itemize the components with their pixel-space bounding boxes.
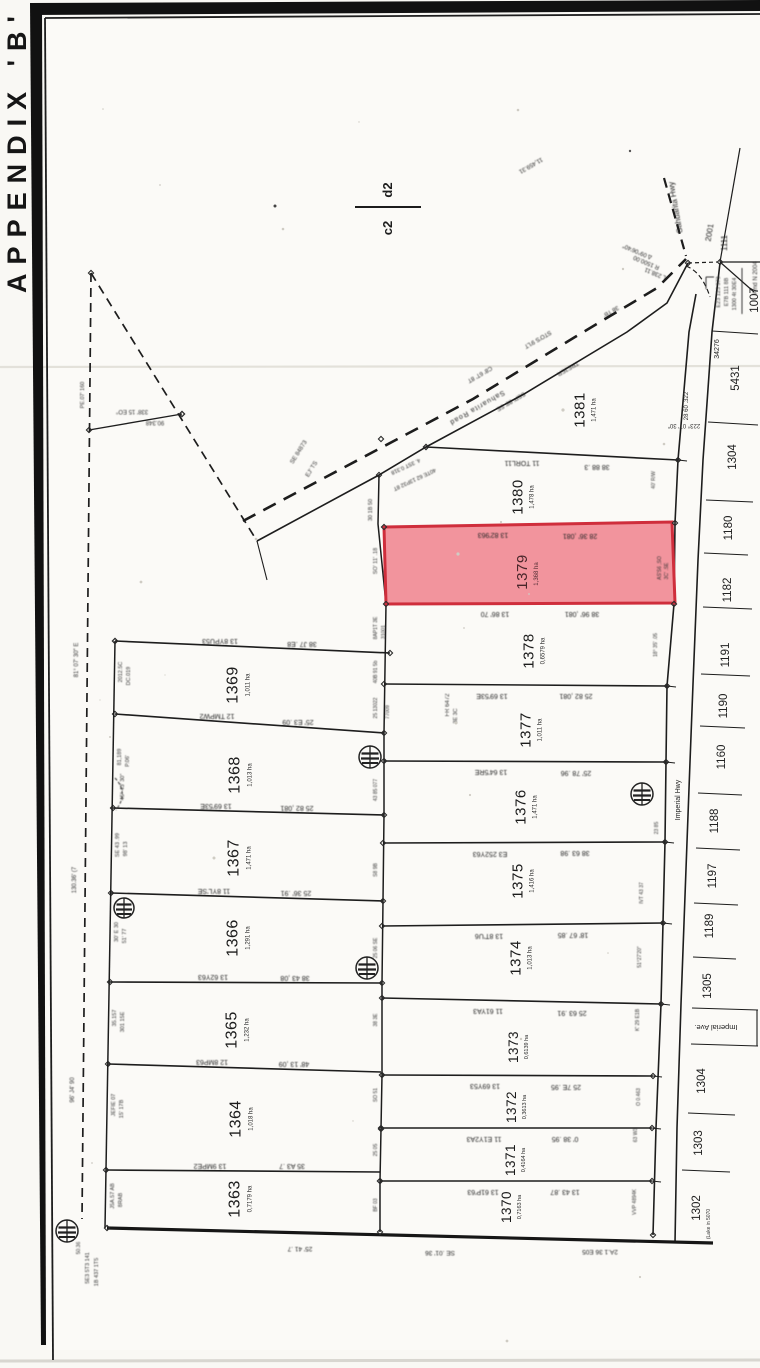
svg-text:38 3E: 38 3E (373, 1013, 379, 1027)
svg-text:1368: 1368 (227, 756, 244, 794)
svg-text:DC.019: DC.019 (126, 667, 132, 686)
svg-text:FR 6472: FR 6472 (445, 693, 451, 717)
svg-text:35.157: 35.157 (112, 1010, 118, 1027)
svg-text:25 7E .95: 25 7E .95 (551, 1083, 581, 1090)
svg-text:5431: 5431 (730, 365, 742, 391)
svg-text:SE .01' 36: SE .01' 36 (425, 1249, 455, 1256)
svg-text:1,232 ha: 1,232 ha (245, 1018, 251, 1042)
svg-text:40' R/W: 40' R/W (651, 471, 657, 489)
svg-text:0,6139 ha: 0,6139 ha (524, 1034, 530, 1059)
svg-text:SO 51: SO 51 (373, 1088, 379, 1102)
svg-text:1,478 ha: 1,478 ha (530, 485, 536, 509)
svg-text:13 9MPE2: 13 9MPE2 (194, 1162, 227, 1169)
svg-text:1,011 ha: 1,011 ha (538, 718, 544, 742)
svg-text:35 A3 .7: 35 A3 .7 (279, 1162, 305, 1169)
svg-text:VVP 4894K: VVP 4894K (632, 1188, 638, 1214)
svg-text:38 63 .98: 38 63 .98 (560, 849, 589, 856)
svg-text:E23 123 373: E23 123 373 (716, 276, 722, 307)
svg-text:1366: 1366 (225, 919, 242, 957)
svg-text:1377: 1377 (518, 712, 535, 747)
svg-text:1365: 1365 (224, 1011, 241, 1049)
svg-text:0,3613 ha: 0,3613 ha (522, 1094, 528, 1119)
svg-text:25 82 ,081: 25 82 ,081 (280, 804, 313, 811)
svg-text:43 85 077: 43 85 077 (373, 779, 379, 801)
svg-text:11 8YL'SE: 11 8YL'SE (198, 887, 231, 894)
svg-text:12 8MP63: 12 8MP63 (196, 1058, 228, 1065)
svg-text:1182: 1182 (722, 578, 734, 603)
svg-text:1367: 1367 (226, 839, 243, 877)
svg-text:98' 13: 98' 13 (123, 842, 129, 857)
svg-text:11 E1Y2A3: 11 E1Y2A3 (466, 1135, 501, 1142)
svg-text:1197: 1197 (707, 864, 719, 889)
svg-text:1,471 ha: 1,471 ha (247, 846, 253, 870)
svg-text:1304: 1304 (696, 1068, 708, 1094)
svg-text:3E 3C: 3E 3C (453, 708, 459, 723)
svg-text:1374: 1374 (508, 940, 525, 975)
svg-text:S8 9B: S8 9B (373, 863, 379, 877)
svg-text:81° 07' 30″ E: 81° 07' 30″ E (74, 643, 80, 678)
svg-text:48' 13 ,09: 48' 13 ,09 (279, 1060, 310, 1067)
svg-text:1363: 1363 (227, 1180, 244, 1218)
svg-text:31001: 31001 (381, 625, 387, 639)
svg-text:81,189: 81,189 (117, 749, 123, 766)
svg-text:1,013 ha: 1,013 ha (248, 763, 254, 787)
svg-text:E3 252Y63: E3 252Y63 (473, 850, 508, 857)
svg-text:130.36' (7: 130.36' (7 (72, 866, 78, 893)
svg-text:301 15E: 301 15E (120, 1011, 126, 1032)
svg-text:28 36' ,081: 28 36' ,081 (563, 532, 598, 539)
svg-text:1305: 1305 (702, 973, 714, 999)
svg-text:0,7179 ha: 0,7179 ha (248, 1185, 254, 1212)
svg-text:1380: 1380 (510, 479, 527, 514)
svg-text:30 1B 50: 30 1B 50 (368, 499, 374, 521)
svg-text:1B 437 1T5: 1B 437 1T5 (94, 1258, 100, 1286)
svg-text:18' 67 .85: 18' 67 .85 (558, 931, 589, 938)
svg-text:77009: 77009 (385, 705, 391, 719)
svg-text:(Lake in 5070: (Lake in 5070 (706, 1209, 712, 1240)
svg-text:0,7163 ha: 0,7163 ha (517, 1194, 523, 1219)
svg-text:APPENDIX 'B': APPENDIX 'B' (2, 7, 32, 293)
svg-text:1303: 1303 (693, 1130, 705, 1156)
svg-text:1300 4t 30E4: 1300 4t 30E4 (732, 278, 738, 311)
svg-text:1,013 ha: 1,013 ha (528, 946, 534, 970)
svg-text:0,4164 ha: 0,4164 ha (521, 1147, 527, 1172)
svg-text:2012.5C: 2012.5C (118, 662, 124, 683)
svg-text:25 06 SE: 25 06 SE (373, 937, 379, 958)
svg-text:13 62Y63: 13 62Y63 (198, 973, 228, 980)
svg-text:1369: 1369 (225, 666, 242, 704)
svg-text:1378: 1378 (521, 633, 538, 668)
svg-text:1191: 1191 (720, 643, 732, 668)
svg-text:Imperial Hwy: Imperial Hwy (675, 779, 682, 820)
svg-text:8AP1T 3E: 8AP1T 3E (373, 616, 379, 639)
svg-text:1180: 1180 (723, 516, 735, 541)
svg-text:25 63 .91: 25 63 .91 (557, 1009, 586, 1016)
svg-text:38 88 .3: 38 88 .3 (584, 463, 609, 470)
svg-text:1160: 1160 (716, 745, 728, 770)
svg-text:c2: c2 (380, 221, 395, 235)
svg-text:13 82'963: 13 82'963 (478, 531, 509, 538)
svg-text:25' 78 .96: 25' 78 .96 (561, 769, 592, 776)
svg-text:25' 41 .7: 25' 41 .7 (287, 1245, 312, 1252)
svg-text:1,471 ha: 1,471 ha (533, 795, 539, 819)
svg-text:1,368 ha: 1,368 ha (534, 562, 540, 586)
svg-text:1364: 1364 (228, 1100, 245, 1138)
svg-text:IVT 43 37: IVT 43 37 (639, 882, 645, 904)
svg-text:28 60 .322: 28 60 .322 (684, 391, 690, 420)
svg-text:51' 77: 51' 77 (122, 929, 128, 944)
svg-text:40B 91 5b: 40B 91 5b (373, 660, 379, 683)
svg-text:38 J7 .E8: 38 J7 .E8 (287, 640, 317, 647)
svg-text:11 61YA3: 11 61YA3 (473, 1007, 503, 1014)
svg-text:25 13022: 25 13022 (373, 697, 379, 718)
svg-text:0,6579 ha: 0,6579 ha (541, 637, 547, 664)
svg-text:25 36' .91: 25 36' .91 (281, 889, 312, 896)
svg-text:50.36: 50.36 (76, 1242, 82, 1255)
svg-text:13 69'53E: 13 69'53E (200, 802, 232, 809)
svg-text:Imperial Ave.: Imperial Ave. (694, 1023, 737, 1032)
svg-text:2A.1 36 E05: 2A.1 36 E05 (582, 1248, 618, 1255)
svg-text:13 69'53E: 13 69'53E (476, 692, 508, 699)
svg-text:1188: 1188 (709, 809, 721, 834)
svg-text:12 TMPW2: 12 TMPW2 (199, 712, 234, 719)
svg-text:223° 07' 30″: 223° 07' 30″ (667, 422, 700, 428)
svg-text:SO' 11' .18: SO' 11' .18 (373, 548, 379, 574)
svg-text:1,018 ha: 1,018 ha (249, 1107, 255, 1131)
svg-text:K' 29 E1B: K' 29 E1B (635, 1008, 641, 1031)
svg-text:63 W3: 63 W3 (633, 1128, 639, 1143)
svg-text:13 69Y53: 13 69Y53 (470, 1082, 500, 1089)
svg-text:15' 17B: 15' 17B (119, 1099, 125, 1118)
svg-text:PE.07' 160: PE.07' 160 (80, 382, 86, 409)
svg-text:1379: 1379 (514, 554, 531, 589)
svg-text:1,471 ha: 1,471 ha (592, 398, 598, 422)
svg-text:d2: d2 (380, 182, 395, 197)
svg-text:O 0.463: O 0.463 (636, 1088, 642, 1106)
svg-text:25' E3 .09: 25' E3 .09 (282, 718, 313, 725)
svg-text:13 8YPU53: 13 8YPU53 (202, 637, 238, 644)
svg-text:25 05: 25 05 (373, 1144, 379, 1157)
svg-text:E7B 111 8B: E7B 111 8B (724, 277, 730, 306)
svg-text:1381: 1381 (572, 392, 589, 427)
svg-text:1,011 ha: 1,011 ha (246, 673, 252, 697)
svg-text:AS'S6 ,SO: AS'S6 ,SO (657, 556, 663, 580)
svg-text:38 96' ,081: 38 96' ,081 (565, 610, 600, 617)
svg-text:51°27'20″: 51°27'20″ (637, 946, 643, 968)
svg-text:1189: 1189 (704, 914, 716, 939)
svg-text:13 86' 70: 13 86' 70 (481, 610, 510, 617)
svg-text:5E3 5T3 141: 5E3 5T3 141 (85, 1252, 91, 1284)
svg-text:1190: 1190 (718, 694, 730, 719)
svg-text:1304: 1304 (727, 444, 739, 470)
svg-text:13 8T'U6: 13 8T'U6 (475, 932, 503, 939)
svg-text:11 TORL11: 11 TORL11 (504, 459, 539, 466)
svg-text:1375: 1375 (510, 863, 527, 898)
svg-text:30' E 30: 30' E 30 (114, 922, 120, 942)
svg-text:1,291 ha: 1,291 ha (246, 926, 252, 950)
svg-text:J5A.57 AB: J5A.57 AB (110, 1183, 116, 1209)
svg-text:JEFIE 07: JEFIE 07 (111, 1094, 117, 1117)
svg-text:0' 38 .95: 0' 38 .95 (552, 1135, 579, 1142)
svg-text:34276: 34276 (714, 339, 721, 359)
svg-text:18° 35' .05: 18° 35' .05 (653, 633, 659, 657)
svg-text:13 64'5RE: 13 64'5RE (474, 768, 507, 775)
svg-text:1373: 1373 (506, 1031, 521, 1063)
svg-text:SE 43 .99: SE 43 .99 (115, 833, 121, 857)
svg-text:1376: 1376 (513, 789, 530, 824)
svg-text:BF 03: BF 03 (373, 1198, 379, 1212)
svg-text:1371: 1371 (503, 1144, 518, 1176)
svg-text:1302: 1302 (691, 1195, 703, 1221)
svg-text:23 85: 23 85 (654, 822, 660, 835)
svg-text:38 43 ,08: 38 43 ,08 (280, 974, 309, 981)
svg-text:1111: 1111 (720, 234, 729, 251)
svg-text:3C' .SE: 3C' .SE (664, 562, 670, 579)
svg-text:1370: 1370 (499, 1191, 514, 1223)
svg-text:8RAB: 8RAB (118, 1192, 124, 1207)
svg-text:Amd N 2004: Amd N 2004 (753, 261, 759, 295)
svg-text:1372: 1372 (504, 1091, 519, 1123)
svg-text:25 82 ,081: 25 82 ,081 (559, 692, 592, 699)
svg-text:13 61P'63: 13 61P'63 (467, 1188, 498, 1195)
svg-text:1,416 ha: 1,416 ha (530, 869, 536, 893)
svg-text:338' 15 EO°: 338' 15 EO° (115, 408, 148, 414)
svg-text:90.348: 90.348 (145, 419, 164, 425)
svg-text:13 43 .87: 13 43 .87 (550, 1188, 579, 1195)
svg-text:P.06': P.06' (125, 755, 131, 767)
svg-text:96' J4' 90: 96' J4' 90 (70, 1077, 76, 1103)
